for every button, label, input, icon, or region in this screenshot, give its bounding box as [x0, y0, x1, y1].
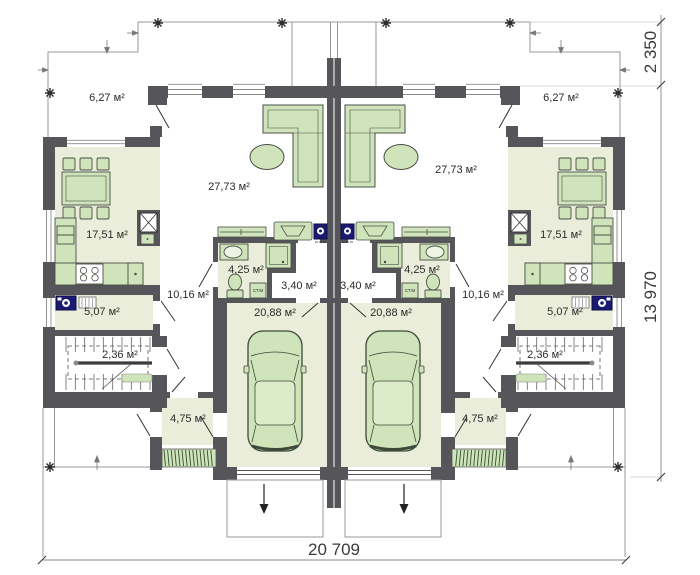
floor-plan-canvas: 6,27 м² 27,73 м² 17,51 м² 4,25 м² 3,40 м… [0, 0, 700, 575]
floor-plan-drawing [0, 0, 700, 575]
unit-right [334, 18, 630, 557]
unit-left [38, 18, 334, 557]
